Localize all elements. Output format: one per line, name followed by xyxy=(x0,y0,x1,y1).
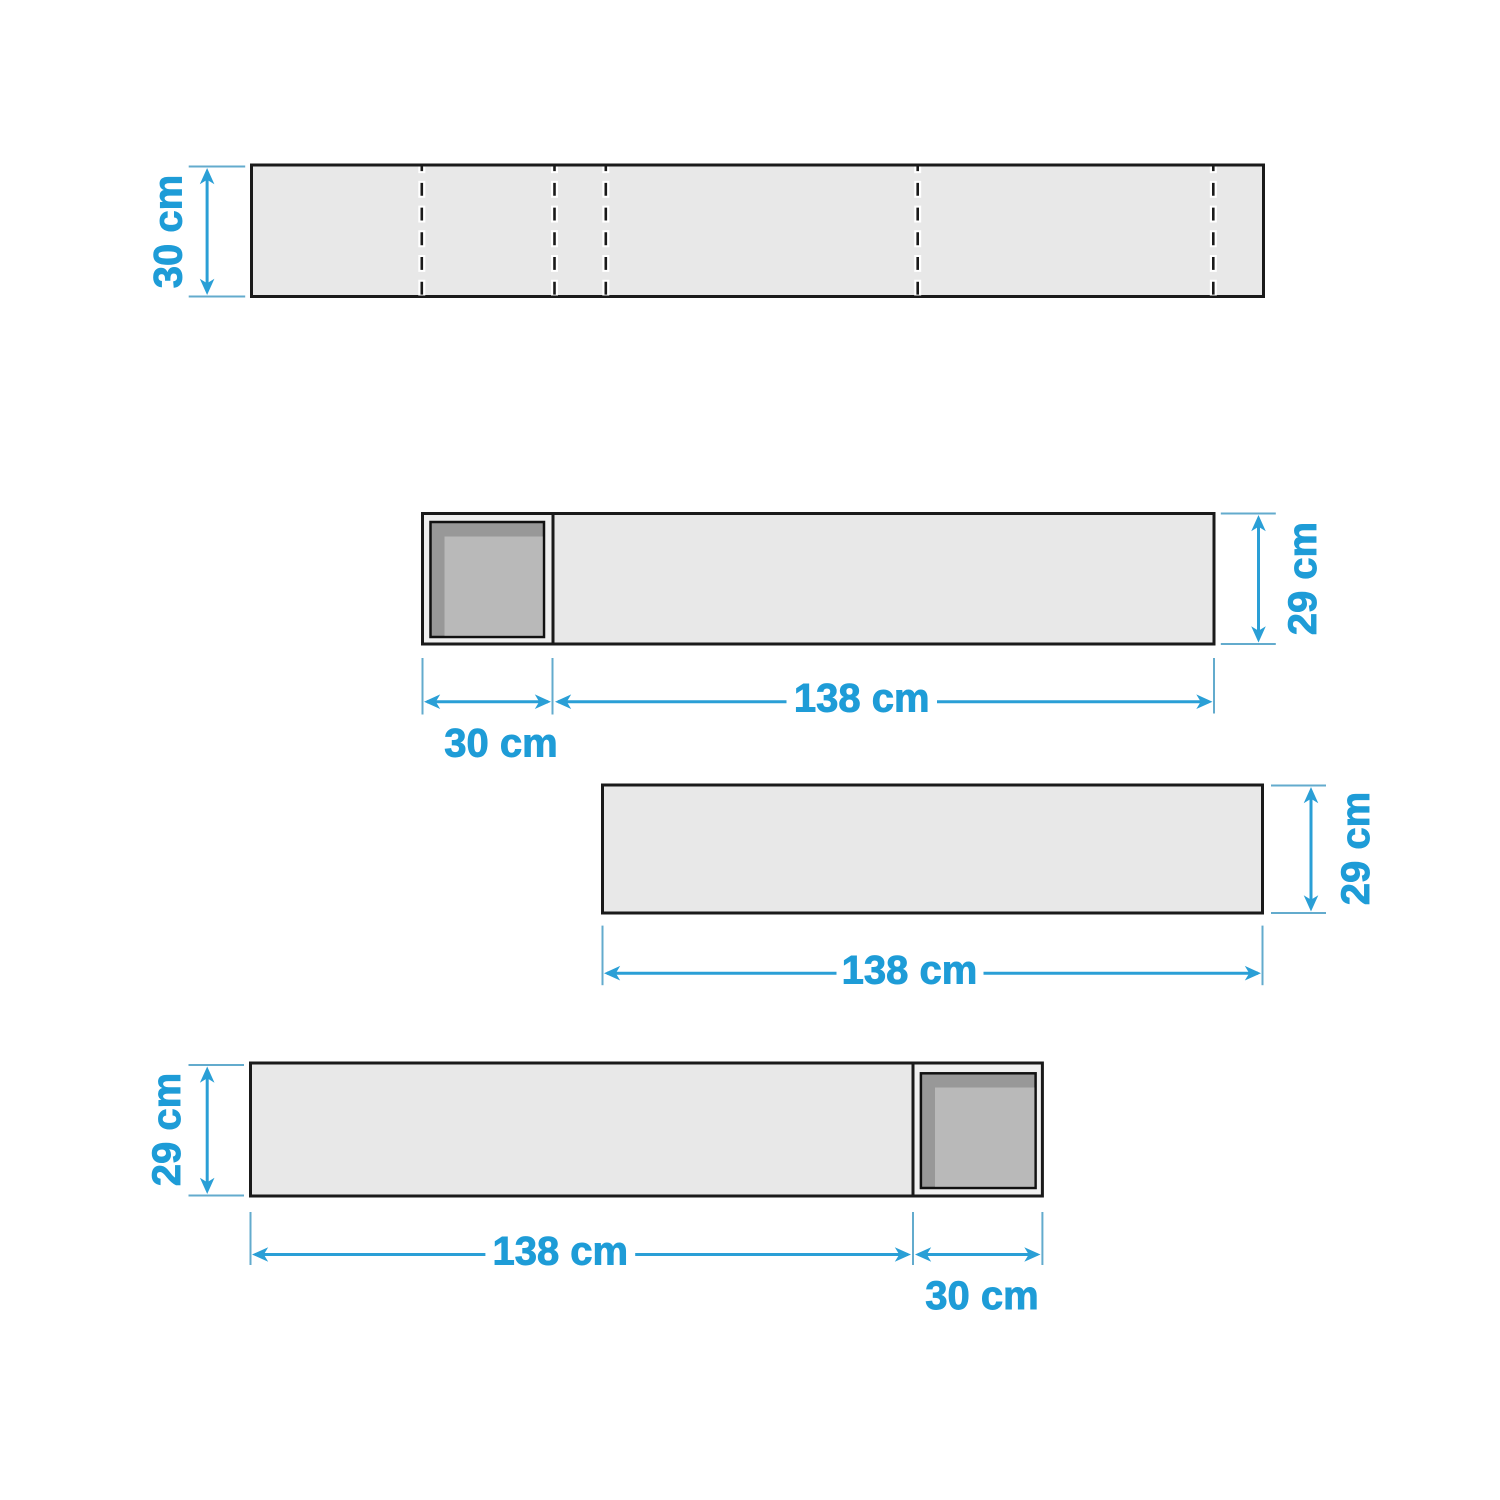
svg-text:138 cm: 138 cm xyxy=(492,1229,628,1273)
svg-text:29 cm: 29 cm xyxy=(1334,792,1378,905)
svg-text:29 cm: 29 cm xyxy=(1281,522,1325,635)
svg-text:30 cm: 30 cm xyxy=(444,722,557,766)
svg-text:30 cm: 30 cm xyxy=(925,1274,1038,1318)
svg-text:30 cm: 30 cm xyxy=(147,175,191,288)
svg-text:29 cm: 29 cm xyxy=(145,1073,189,1186)
svg-text:138 cm: 138 cm xyxy=(794,677,930,721)
svg-text:138 cm: 138 cm xyxy=(842,948,978,992)
